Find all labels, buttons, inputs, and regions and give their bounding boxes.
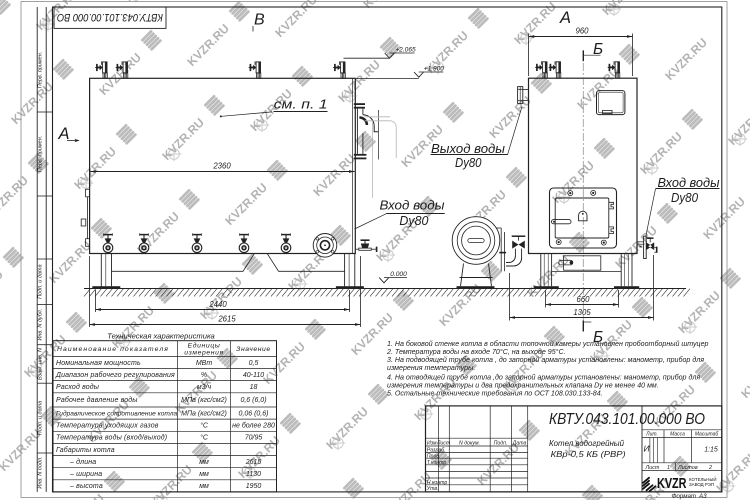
svg-text:Утв.: Утв.: [427, 486, 439, 492]
svg-text:0,06 (0,6): 0,06 (0,6): [239, 410, 269, 417]
svg-text:мм: мм: [199, 471, 209, 478]
svg-text:Лист: Лист: [645, 465, 660, 471]
svg-text:960: 960: [575, 26, 589, 35]
svg-text:измерения температуры и два пр: измерения температуры и два предохраните…: [387, 381, 659, 389]
svg-text:Подп. и дата: Подп. и дата: [38, 401, 44, 435]
svg-text:А: А: [559, 9, 571, 27]
svg-text:2615: 2615: [245, 459, 262, 466]
svg-text:Т.контр: Т.контр: [427, 460, 447, 466]
svg-text:Техническая характеристика: Техническая характеристика: [107, 332, 215, 341]
svg-text:мм: мм: [199, 459, 209, 466]
svg-text:N докум.: N докум.: [459, 440, 480, 446]
svg-text:1. На боковой стенке котла в: 1. На боковой стенке котла в области топ…: [387, 340, 709, 348]
svg-text:2360: 2360: [212, 162, 231, 171]
svg-text:Взам. инв. N: Взам. инв. N: [38, 348, 44, 380]
svg-text:1:15: 1:15: [704, 447, 718, 454]
svg-text:Значение: Значение: [236, 346, 271, 353]
svg-text:МПа (кгс/см2): МПа (кгс/см2): [181, 397, 227, 404]
svg-text:Н.контр: Н.контр: [427, 480, 448, 486]
svg-text:Расход воды: Расход воды: [56, 383, 100, 391]
svg-text:Рабочее давление воды: Рабочее давление воды: [56, 396, 138, 404]
svg-text:5. Остальные технические треб: 5. Остальные технические требования по О…: [387, 390, 603, 398]
svg-text:Вход воды: Вход воды: [380, 199, 445, 213]
svg-text:0,5: 0,5: [249, 360, 259, 367]
svg-text:0,6 (6,0): 0,6 (6,0): [240, 397, 266, 404]
svg-text:Лист: Лист: [436, 440, 451, 446]
svg-text:2. Температура воды на входе: 2. Температура воды на входе 70°С, на вы…: [386, 348, 566, 356]
svg-text:Dy80: Dy80: [455, 156, 482, 170]
svg-text:– длина: – длина: [69, 458, 96, 466]
svg-text:Изм: Изм: [427, 440, 437, 446]
svg-text:И: И: [644, 444, 651, 454]
svg-text:В: В: [254, 12, 265, 29]
svg-text:Вход воды: Вход воды: [658, 176, 720, 190]
svg-text:Температура воды (вход/выход): Температура воды (вход/выход): [56, 434, 167, 442]
svg-text:40-110: 40-110: [243, 372, 264, 379]
svg-text:Инв. N подл.: Инв. N подл.: [38, 456, 44, 488]
svg-text:Подп. и дата: Подп. и дата: [38, 264, 44, 298]
svg-text:+2.065: +2.065: [395, 47, 416, 54]
svg-text:– высота: – высота: [69, 483, 103, 490]
svg-text:см. п. 1: см. п. 1: [274, 98, 328, 112]
svg-text:1: 1: [667, 465, 670, 471]
svg-text:0.000: 0.000: [390, 271, 407, 278]
svg-text:– ширина: – ширина: [69, 471, 102, 478]
svg-text:Листов: Листов: [677, 465, 698, 471]
svg-text:Температура уходящих газов: Температура уходящих газов: [56, 422, 159, 430]
svg-text:1950: 1950: [246, 483, 262, 490]
svg-text:Dy80: Dy80: [399, 214, 428, 228]
svg-text:измерения температуры.: измерения температуры.: [387, 364, 475, 372]
svg-text:измерения: измерения: [184, 350, 223, 357]
svg-text:4. На отводящей трубе котла ,: 4. На отводящей трубе котла ,до запорной…: [387, 373, 700, 381]
svg-text:+1.900: +1.900: [424, 66, 445, 73]
svg-text:°С: °С: [200, 434, 209, 442]
svg-text:KVZR: KVZR: [657, 475, 687, 492]
svg-text:КВТУ.043.101.00.000 ВО: КВТУ.043.101.00.000 ВО: [549, 411, 705, 428]
svg-text:Гидравлическое сопротивление к: Гидравлическое сопротивление котла: [56, 409, 177, 417]
svg-text:2: 2: [708, 465, 712, 471]
svg-text:м3/ч: м3/ч: [197, 384, 212, 391]
svg-text:Выход воды: Выход воды: [431, 142, 505, 156]
svg-text:КВр-0,5 КБ (РВР): КВр-0,5 КБ (РВР): [551, 449, 626, 459]
svg-text:Масштаб: Масштаб: [695, 432, 719, 438]
svg-text:1130: 1130: [246, 471, 261, 478]
svg-text:18: 18: [250, 384, 258, 391]
svg-text:Номинальная мощность: Номинальная мощность: [56, 360, 141, 367]
svg-text:Дата: Дата: [512, 440, 527, 446]
svg-text:%: %: [201, 372, 207, 379]
svg-text:Перв. примен.: Перв. примен.: [38, 52, 44, 89]
svg-text:70/95: 70/95: [245, 435, 263, 442]
svg-text:Единицы: Единицы: [188, 341, 221, 349]
svg-text:Диапазон рабочего регулировани: Диапазон рабочего регулирования: [55, 371, 175, 379]
svg-text:мм: мм: [199, 483, 209, 490]
svg-text:не более 280: не более 280: [232, 422, 275, 430]
svg-text:МВт: МВт: [196, 360, 213, 367]
svg-text:Перв. примен.: Перв. примен.: [38, 136, 44, 173]
svg-text:Лит.: Лит.: [645, 432, 658, 438]
svg-text:660: 660: [576, 295, 590, 304]
svg-text:Подп.: Подп.: [494, 440, 508, 446]
svg-text:МПа (кгс/см2): МПа (кгс/см2): [181, 410, 227, 417]
svg-text:ЗАВОД РЭП: ЗАВОД РЭП: [689, 482, 714, 487]
svg-text:°С: °С: [200, 422, 209, 430]
svg-text:2615: 2615: [217, 315, 236, 324]
svg-text:Инв. N дубл.: Инв. N дубл.: [38, 309, 44, 341]
svg-text:Котел водогрейный: Котел водогрейный: [549, 438, 624, 448]
svg-text:Dy80: Dy80: [671, 191, 698, 205]
svg-text:2440: 2440: [208, 300, 227, 309]
svg-text:Наименование показателя: Наименование показателя: [57, 346, 169, 353]
svg-text:1305: 1305: [573, 308, 591, 317]
svg-text:Масса: Масса: [670, 432, 685, 438]
svg-text:Пров.: Пров.: [427, 453, 441, 459]
svg-text:Габариты котла: Габариты котла: [56, 446, 115, 454]
svg-text:КВТУ.043.101.00.000 ВО: КВТУ.043.101.00.000 ВО: [57, 11, 163, 23]
svg-text:А3: А3: [698, 493, 707, 500]
svg-text:Формат: Формат: [672, 493, 697, 500]
svg-text:3. На подводящей трубе котла: 3. На подводящей трубе котла , до запорн…: [387, 356, 704, 364]
